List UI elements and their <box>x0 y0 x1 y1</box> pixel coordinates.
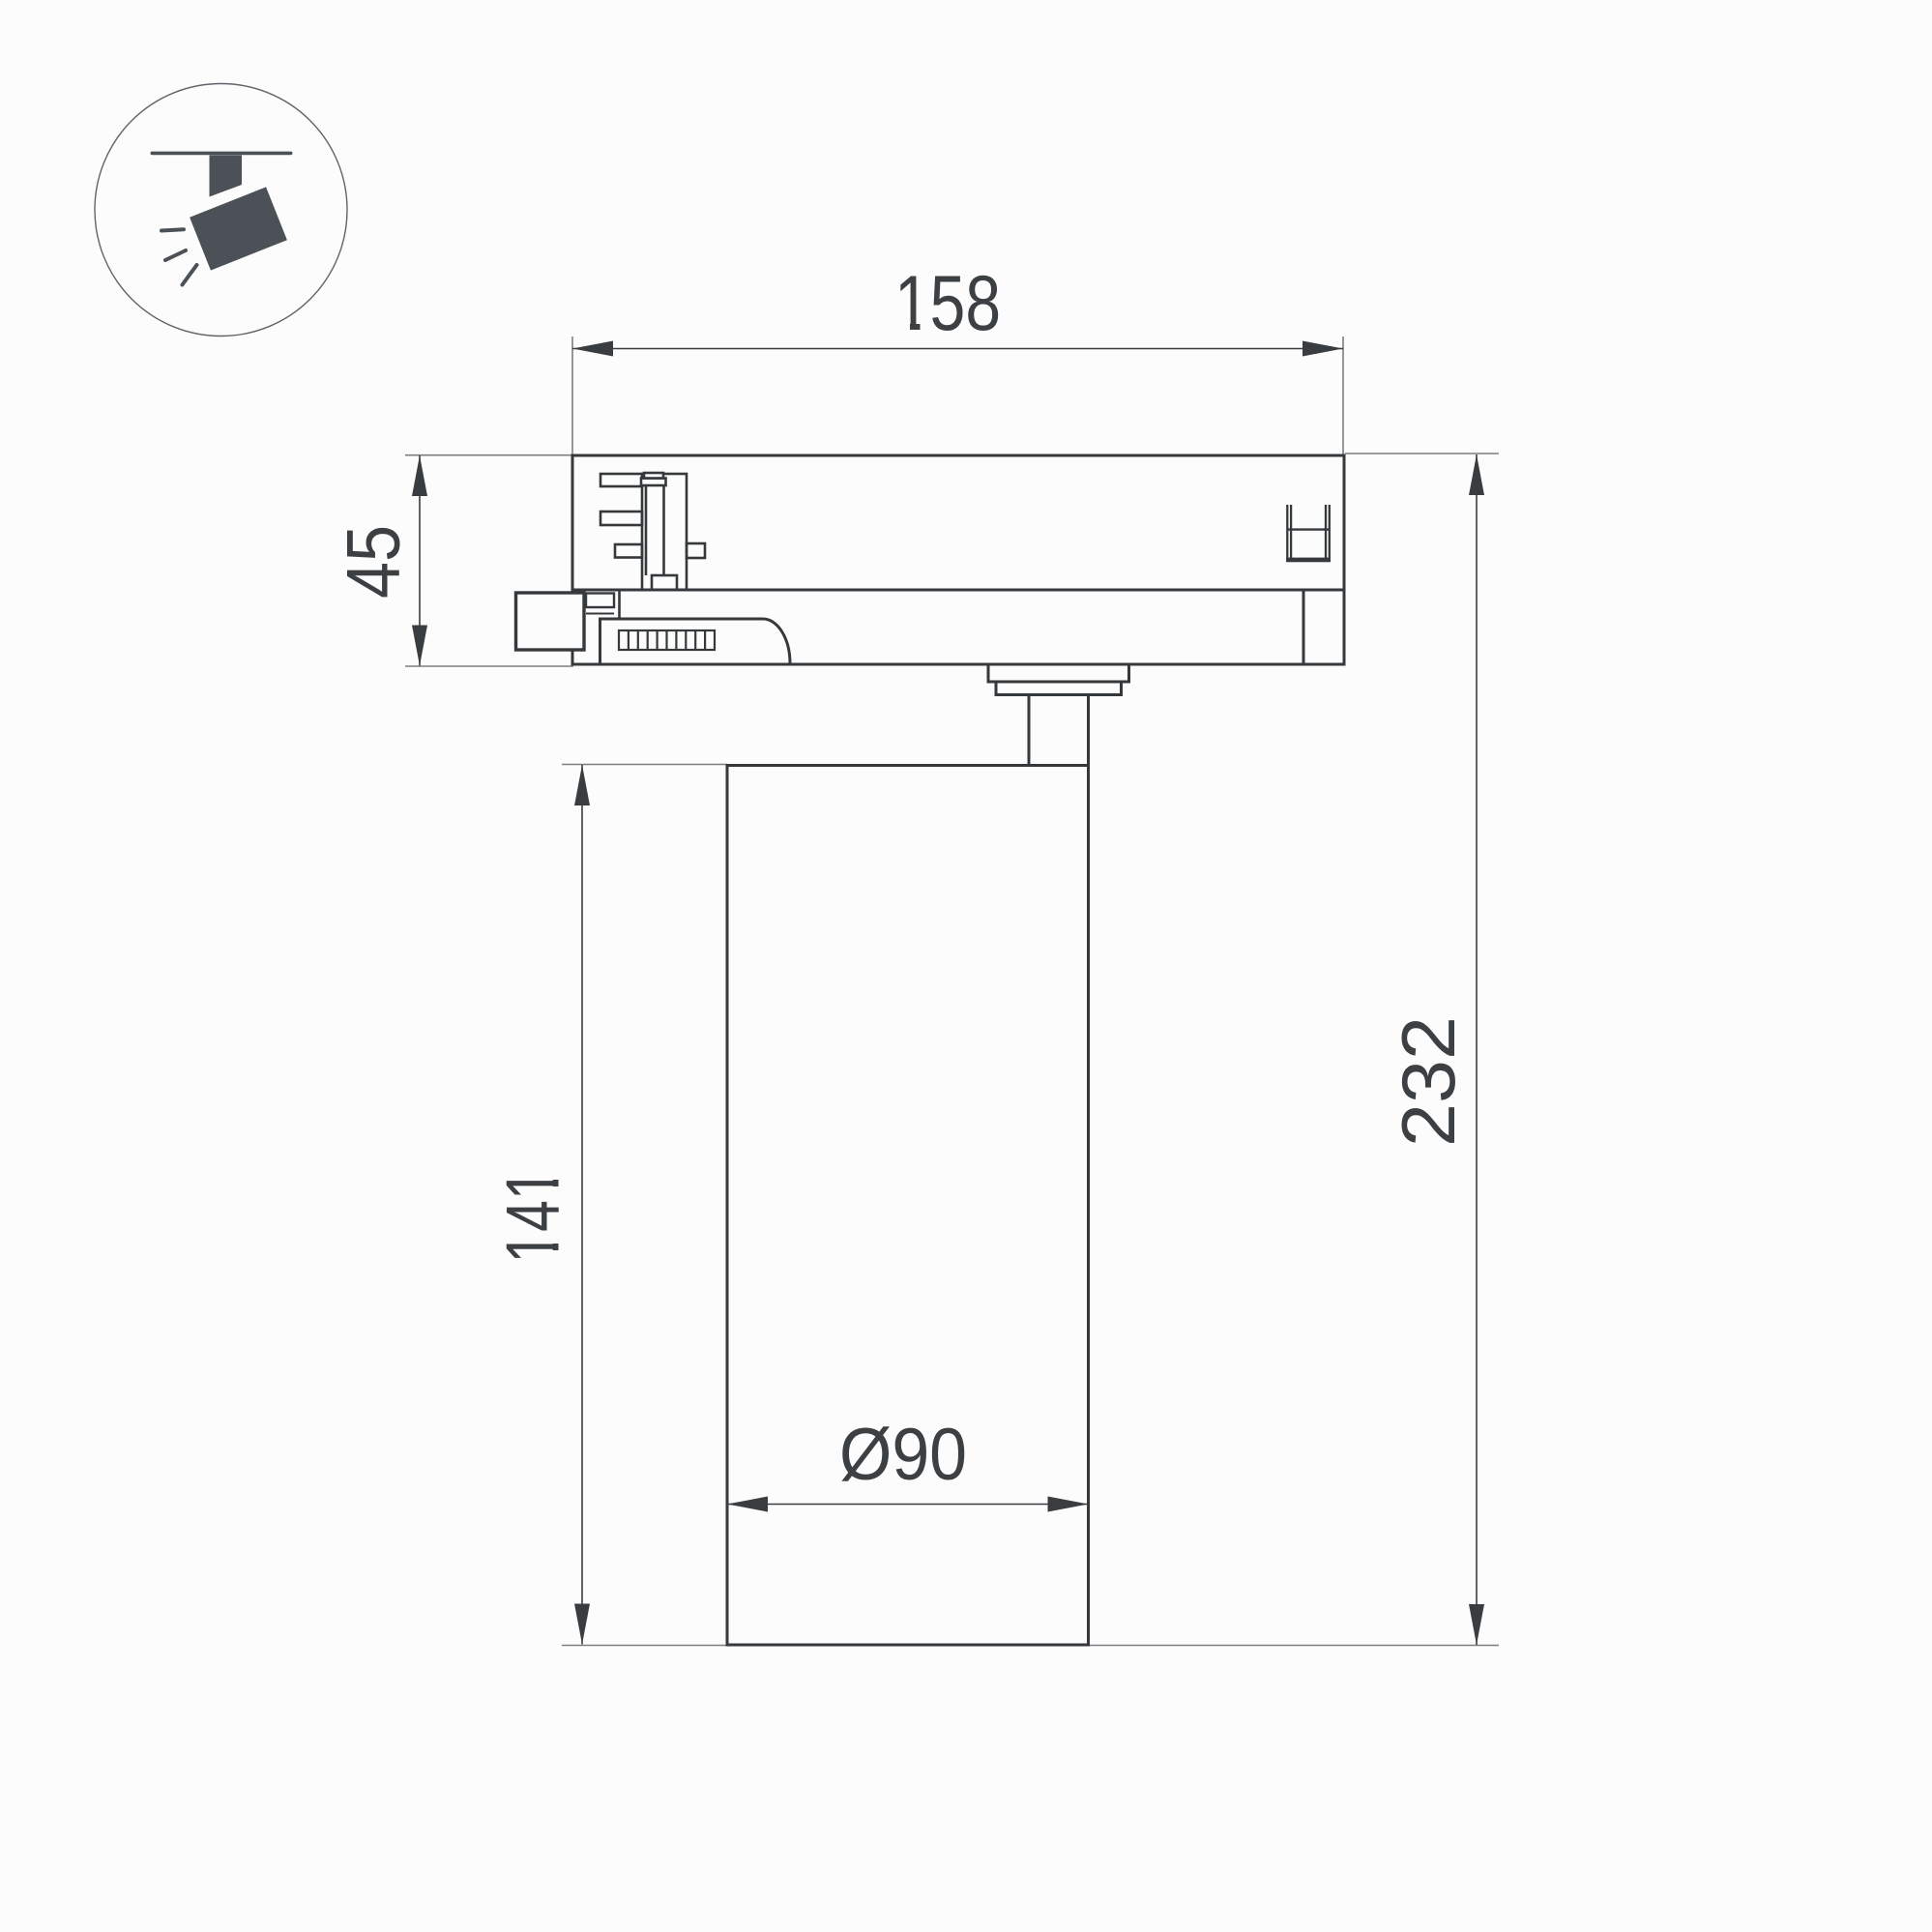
svg-text:232: 232 <box>1386 1016 1471 1147</box>
svg-text:158: 158 <box>894 260 1001 347</box>
svg-text:45: 45 <box>331 525 416 599</box>
svg-text:Ø90: Ø90 <box>839 1414 967 1496</box>
svg-text:141: 141 <box>490 1169 575 1264</box>
